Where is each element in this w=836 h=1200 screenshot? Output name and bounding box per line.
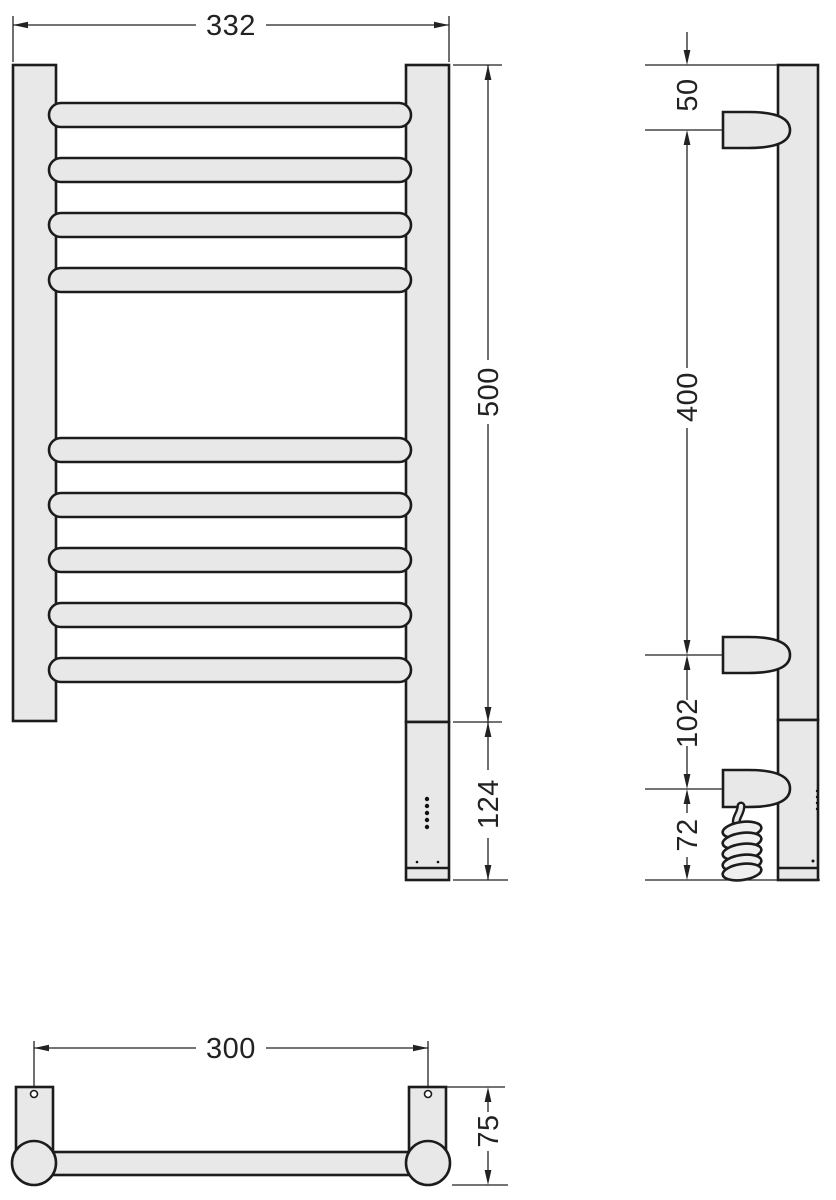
towel-bar: [49, 103, 411, 127]
towel-bar: [49, 548, 411, 572]
dim-label-width: 332: [206, 10, 256, 42]
housing-screw-dot: [416, 861, 419, 864]
wall-bracket-bottom: [723, 637, 790, 673]
dim-label-element-height: 124: [473, 779, 505, 829]
technical-drawing-canvas: 332 500 124: [0, 0, 836, 1200]
towel-bar: [49, 158, 411, 182]
electric-connection-box: [723, 770, 790, 807]
wall-bracket-top: [723, 112, 790, 148]
dim-element-gap: 102: [672, 655, 704, 789]
towel-bars-bottom-group: [49, 438, 411, 682]
power-cable-coil: [722, 806, 763, 883]
towel-bar: [49, 603, 411, 627]
dim-depth: 75: [447, 1087, 508, 1185]
dim-overall-height: 500: [453, 65, 505, 722]
side-view: 50 400 102 72: [645, 32, 820, 883]
towel-bar: [49, 438, 411, 462]
screw-hole-right: [425, 1091, 432, 1098]
side-rail: [778, 65, 818, 720]
rail-section-left: [12, 1141, 56, 1185]
housing-screw-dot: [437, 861, 440, 864]
dim-label-height: 500: [473, 367, 505, 417]
dim-element-bottom: 72: [672, 789, 704, 880]
dim-label-top-offset: 50: [672, 78, 704, 111]
dim-mounting-distance: 300: [34, 1033, 428, 1086]
heating-element-housing-front: [406, 722, 449, 880]
towel-bar: [49, 268, 411, 292]
dim-overall-width: 332: [13, 10, 449, 62]
dim-label-depth: 75: [473, 1114, 505, 1147]
towel-bar: [49, 213, 411, 237]
dim-label-mounting-distance: 300: [206, 1033, 256, 1065]
front-right-rail: [406, 65, 449, 722]
front-view: 332 500 124: [13, 10, 508, 880]
dim-label-element-gap: 102: [672, 698, 704, 748]
dim-bracket-spacing: 400: [672, 145, 704, 655]
towel-bars-top-group: [49, 103, 411, 292]
dim-label-bracket-spacing: 400: [672, 372, 704, 422]
bottom-view: 300 75: [12, 1033, 508, 1185]
dim-top-bracket-offset: 50: [672, 32, 704, 145]
towel-bar: [49, 493, 411, 517]
screw-hole-left: [31, 1091, 38, 1098]
dim-label-element-bottom: 72: [672, 818, 704, 851]
towel-radiator-drawing: 332 500 124: [0, 0, 836, 1200]
dim-element-height: 124: [453, 722, 508, 880]
bottom-rung: [40, 1152, 422, 1175]
rail-section-right: [406, 1141, 450, 1185]
towel-bar: [49, 658, 411, 682]
